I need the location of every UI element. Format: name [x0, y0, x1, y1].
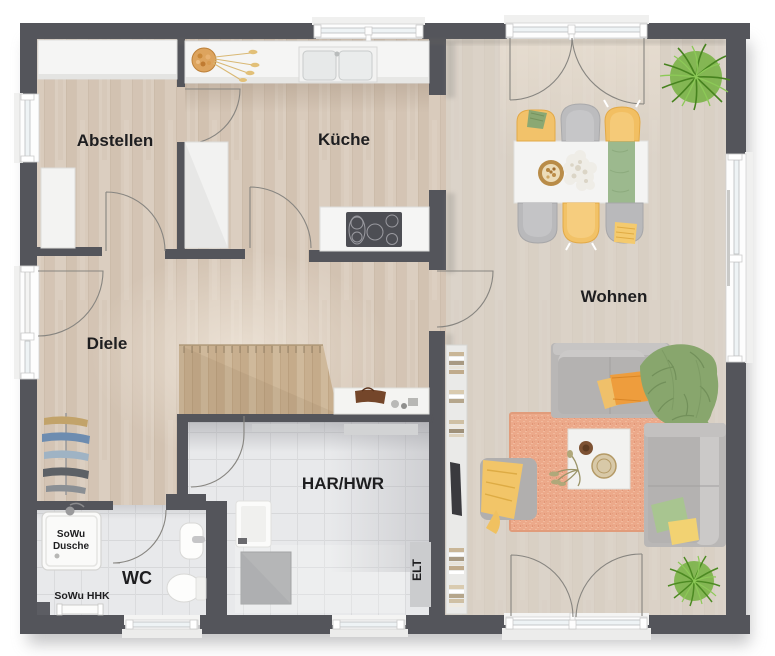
svg-text:Küche: Küche — [318, 130, 370, 149]
svg-text:WC: WC — [122, 568, 152, 588]
svg-text:HAR/HWR: HAR/HWR — [302, 474, 384, 493]
svg-text:Abstellen: Abstellen — [77, 131, 154, 150]
svg-text:Wohnen: Wohnen — [581, 287, 648, 306]
svg-text:Diele: Diele — [87, 334, 128, 353]
svg-text:SoWu HHK: SoWu HHK — [54, 590, 110, 602]
svg-text:ELT: ELT — [410, 558, 424, 580]
svg-text:SoWu: SoWu — [57, 529, 85, 540]
svg-text:Dusche: Dusche — [53, 541, 90, 552]
